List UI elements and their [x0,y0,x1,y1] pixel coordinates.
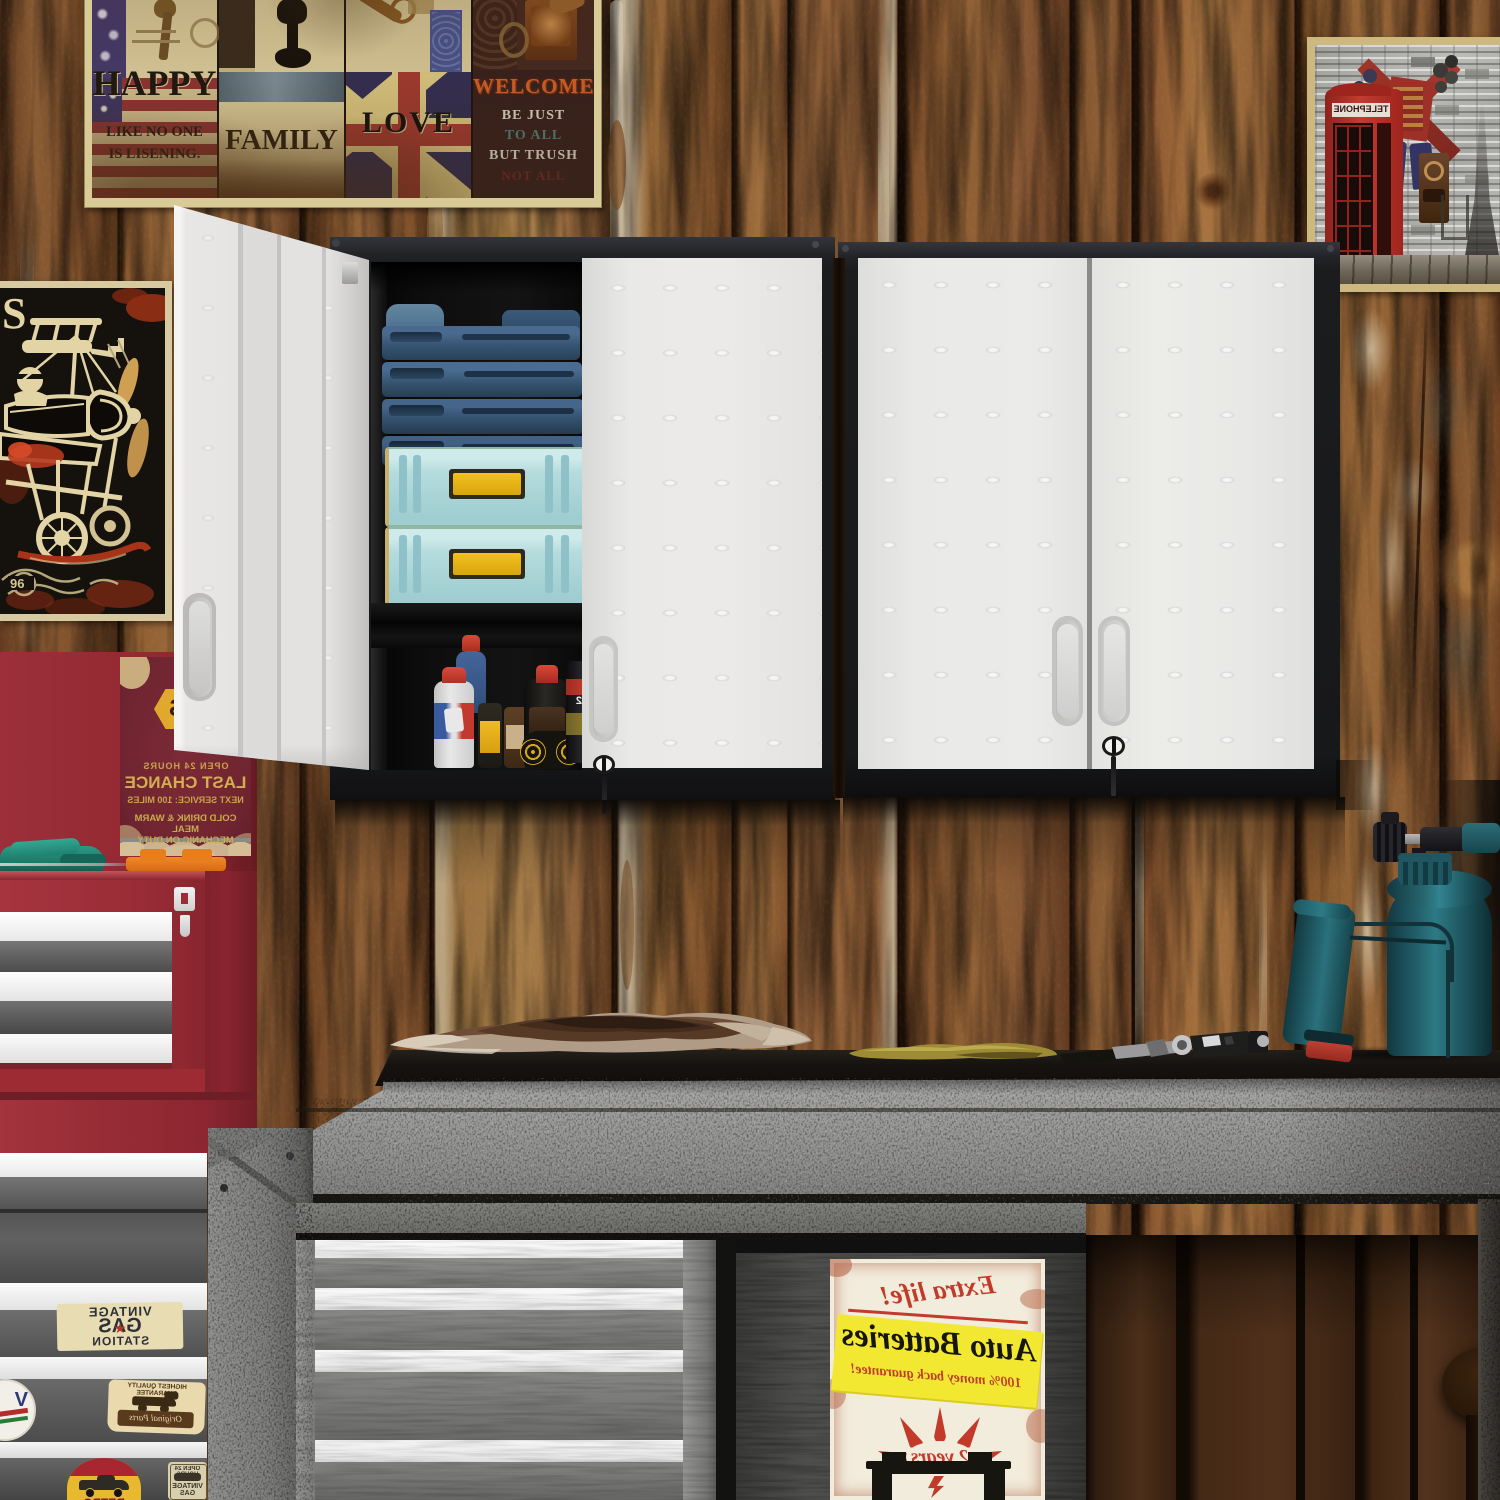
svg-text:96: 96 [10,576,24,591]
svg-text:S: S [2,289,26,338]
